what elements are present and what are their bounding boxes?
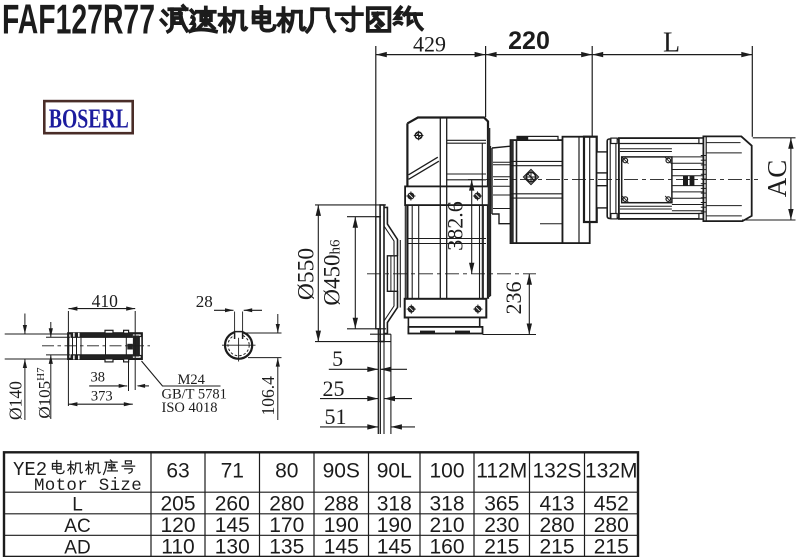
svg-text:100: 100: [429, 460, 464, 483]
svg-text:210: 210: [429, 514, 464, 537]
svg-text:135: 135: [269, 536, 304, 557]
svg-text:5: 5: [332, 346, 343, 371]
svg-text:413: 413: [539, 493, 574, 516]
svg-text:288: 288: [324, 493, 359, 516]
svg-text:Ø550: Ø550: [294, 248, 320, 300]
svg-text:410: 410: [92, 291, 119, 311]
svg-text:452: 452: [594, 493, 629, 516]
svg-text:318: 318: [377, 493, 412, 516]
svg-text:236: 236: [501, 282, 526, 315]
svg-text:Motor Size: Motor Size: [34, 476, 142, 496]
svg-text:112M: 112M: [476, 460, 527, 483]
svg-text:318: 318: [429, 493, 464, 516]
svg-text:190: 190: [377, 514, 412, 537]
svg-text:AC: AC: [762, 160, 792, 198]
svg-text:AD: AD: [64, 538, 90, 557]
svg-text:429: 429: [413, 31, 446, 56]
svg-text:120: 120: [160, 514, 195, 537]
svg-text:373: 373: [91, 388, 113, 404]
svg-text:71: 71: [221, 460, 244, 483]
svg-text:Ø140: Ø140: [5, 381, 25, 420]
svg-text:220: 220: [508, 27, 550, 55]
svg-text:170: 170: [269, 514, 304, 537]
svg-text:280: 280: [594, 514, 629, 537]
svg-text:28: 28: [196, 292, 213, 311]
svg-text:80: 80: [275, 460, 298, 483]
svg-text:215: 215: [484, 536, 519, 557]
svg-text:132M: 132M: [585, 460, 638, 483]
svg-text:215: 215: [594, 536, 629, 557]
svg-text:205: 205: [160, 493, 195, 516]
svg-text:AC: AC: [64, 516, 90, 537]
svg-text:215: 215: [539, 536, 574, 557]
svg-text:132S: 132S: [532, 460, 581, 483]
svg-text:365: 365: [484, 493, 519, 516]
svg-text:145: 145: [324, 536, 359, 557]
svg-text:190: 190: [324, 514, 359, 537]
svg-text:63: 63: [166, 460, 189, 483]
svg-text:382.6: 382.6: [443, 201, 468, 251]
svg-text:90S: 90S: [323, 460, 360, 483]
svg-text:280: 280: [539, 514, 574, 537]
svg-text:130: 130: [215, 536, 250, 557]
svg-text:51: 51: [325, 404, 347, 429]
svg-text:260: 260: [215, 493, 250, 516]
svg-text:38: 38: [90, 370, 105, 386]
svg-text:ISO 4018: ISO 4018: [162, 400, 218, 416]
svg-text:90L: 90L: [377, 460, 412, 483]
svg-text:280: 280: [269, 493, 304, 516]
svg-text:L: L: [72, 495, 83, 516]
svg-text:BOSERL: BOSERL: [49, 103, 129, 134]
svg-text:FAF127R77: FAF127R77: [2, 0, 155, 43]
svg-text:25: 25: [323, 376, 345, 401]
svg-text:L: L: [663, 28, 680, 59]
svg-text:230: 230: [484, 514, 519, 537]
svg-text:145: 145: [215, 514, 250, 537]
svg-text:145: 145: [377, 536, 412, 557]
svg-text:110: 110: [161, 536, 194, 557]
svg-text:160: 160: [429, 536, 464, 557]
svg-text:106.4: 106.4: [258, 376, 278, 416]
